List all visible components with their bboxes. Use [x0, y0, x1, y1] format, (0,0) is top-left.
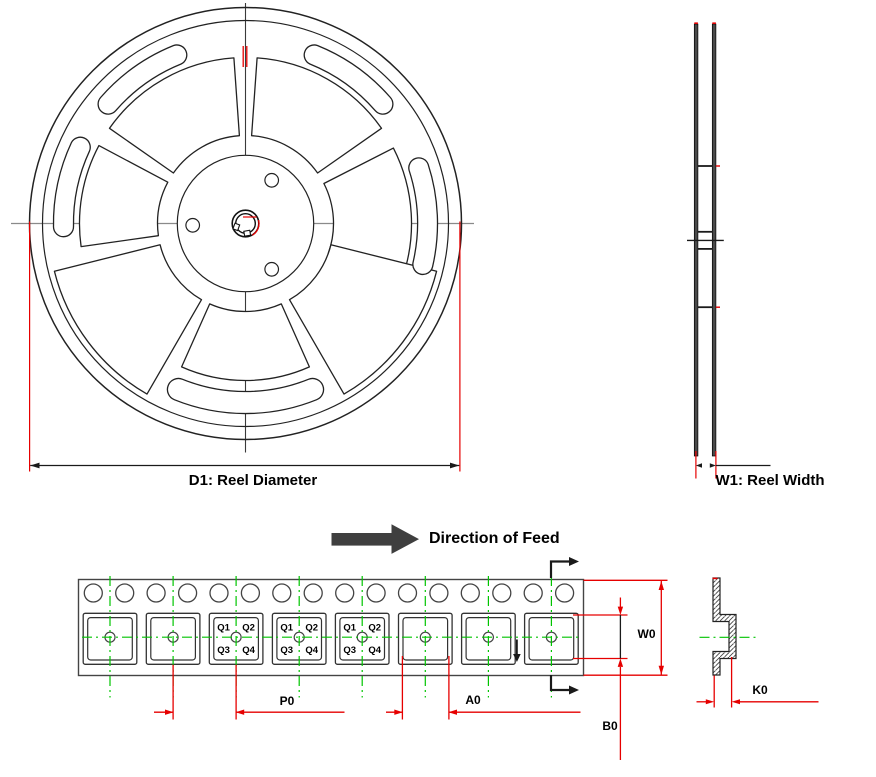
reel-side-view — [687, 23, 771, 478]
dimension-arrowhead — [706, 699, 714, 704]
sprocket-hole — [147, 584, 165, 602]
direction-of-feed-arrow — [332, 524, 420, 554]
pocket-quadrant-label: Q2 — [368, 623, 381, 634]
sprocket-hole — [84, 584, 102, 602]
dimension-arrowhead — [394, 710, 403, 715]
sprocket-hole — [273, 584, 291, 602]
pocket-quadrant-label: Q1 — [280, 623, 293, 634]
sprocket-hole — [179, 584, 197, 602]
dimension-arrowhead — [618, 607, 623, 615]
dimension-arrowhead — [710, 463, 716, 468]
feed-direction-label: Direction of Feed — [429, 530, 560, 548]
pocket-section-profile — [713, 578, 736, 675]
pocket-quadrant-label: Q2 — [242, 623, 255, 634]
reel-hub — [177, 155, 313, 291]
dimension-arrowhead — [448, 710, 457, 715]
hub-drive-hole — [186, 219, 200, 233]
hub-drive-hole — [265, 174, 279, 188]
drawing-svg: Q1Q2Q3Q4Q1Q2Q3Q4Q1Q2Q3Q4 — [0, 0, 876, 777]
sprocket-hole — [116, 584, 134, 602]
dimension-arrowhead — [618, 659, 623, 667]
sprocket-hole — [556, 584, 574, 602]
sprocket-hole — [210, 584, 228, 602]
section-cut-marker-bottom — [551, 675, 570, 690]
sprocket-hole — [430, 584, 448, 602]
sprocket-hole — [524, 584, 542, 602]
reel-front-view — [11, 3, 474, 472]
sprocket-hole — [493, 584, 511, 602]
k0-label: K0 — [752, 684, 767, 697]
dimension-arrowhead — [659, 581, 664, 590]
rim-arc-slot — [409, 158, 438, 275]
sprocket-hole — [461, 584, 479, 602]
hub-drive-hole — [265, 263, 279, 277]
pocket-quadrant-label: Q4 — [368, 645, 381, 656]
dimension-arrowhead — [165, 710, 174, 715]
dimension-arrowhead — [236, 710, 245, 715]
sprocket-hole — [304, 584, 322, 602]
pocket-quadrant-label: Q3 — [343, 645, 356, 656]
spoke-window — [54, 245, 201, 394]
section-cut-marker-top — [551, 562, 570, 579]
pocket-quadrant-label: Q2 — [305, 623, 318, 634]
pocket-quadrant-label: Q3 — [217, 645, 230, 656]
sprocket-hole — [336, 584, 354, 602]
b0-label: B0 — [602, 720, 617, 733]
dimension-arrowhead — [450, 463, 459, 469]
dimension-arrowhead — [732, 699, 740, 704]
sprocket-hole — [241, 584, 259, 602]
w0-label: W0 — [638, 628, 656, 641]
d1-label: D1: Reel Diameter — [189, 473, 317, 490]
w1-label: W1: Reel Width — [715, 473, 824, 490]
spoke-window — [182, 304, 310, 381]
pocket-quadrant-label: Q3 — [280, 645, 293, 656]
dimension-arrowhead — [659, 666, 664, 675]
pocket-quadrant-label: Q4 — [242, 645, 255, 656]
p0-label: P0 — [280, 695, 295, 708]
sprocket-hole — [367, 584, 385, 602]
a0-label: A0 — [465, 694, 480, 707]
carrier-tape-view: Q1Q2Q3Q4Q1Q2Q3Q4Q1Q2Q3Q4 — [79, 524, 668, 760]
pocket-quadrant-label: Q4 — [305, 645, 318, 656]
tape-and-reel-drawing: Q1Q2Q3Q4Q1Q2Q3Q4Q1Q2Q3Q4 — [0, 0, 876, 777]
pocket-quadrant-label: Q1 — [217, 623, 230, 634]
sprocket-hole — [399, 584, 417, 602]
dimension-arrowhead — [696, 463, 702, 468]
dimension-arrowhead — [30, 463, 39, 469]
section-arrow-bottom — [569, 686, 579, 695]
spoke-window — [79, 146, 167, 247]
section-arrow-top — [569, 557, 579, 566]
pocket-quadrant-label: Q1 — [343, 623, 356, 634]
